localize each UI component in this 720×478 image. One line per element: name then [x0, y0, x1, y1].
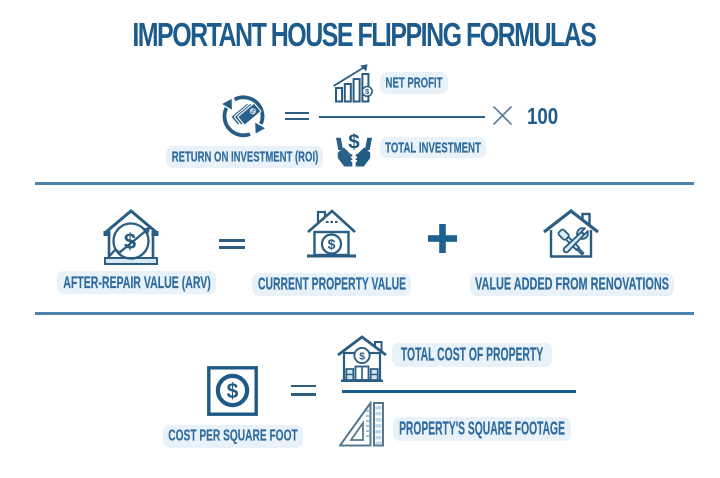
svg-text:$: $ — [359, 351, 365, 363]
svg-text:$: $ — [348, 130, 360, 153]
svg-text:$: $ — [328, 236, 336, 252]
svg-text:$: $ — [227, 380, 239, 403]
svg-text:$: $ — [124, 229, 136, 254]
